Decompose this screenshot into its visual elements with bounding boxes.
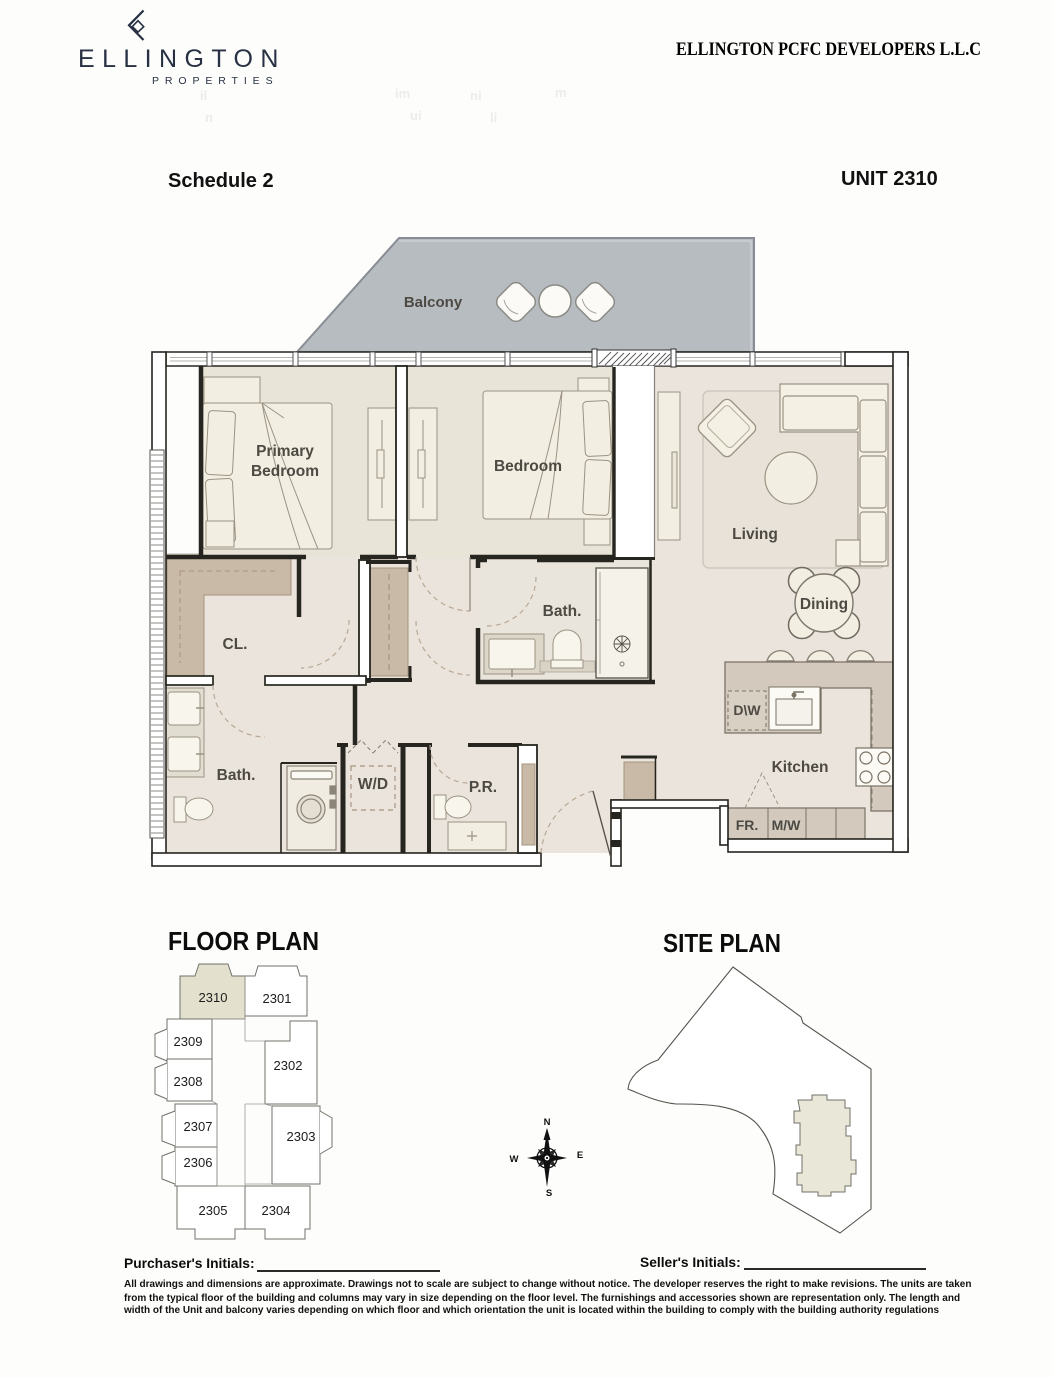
svg-text:UNIT 2310: UNIT 2310 <box>841 168 938 190</box>
svg-text:2303: 2303 <box>287 1129 316 1144</box>
svg-text:SITE PLAN: SITE PLAN <box>663 928 781 958</box>
svg-text:Kitchen: Kitchen <box>772 759 829 776</box>
svg-text:Bedroom: Bedroom <box>251 463 319 480</box>
svg-text:Schedule 2: Schedule 2 <box>168 170 274 192</box>
svg-text:ni: ni <box>470 88 482 103</box>
svg-text:ELLINGTON PCFC DEVELOPERS L.L.: ELLINGTON PCFC DEVELOPERS L.L.C <box>676 39 981 60</box>
svg-text:PROPERTIES: PROPERTIES <box>152 75 279 87</box>
svg-text:2308: 2308 <box>174 1074 203 1089</box>
svg-text:2301: 2301 <box>263 991 292 1006</box>
svg-text:2304: 2304 <box>262 1203 291 1218</box>
svg-text:ELLINGTON: ELLINGTON <box>78 45 286 73</box>
svg-text:n: n <box>205 110 213 125</box>
svg-text:W: W <box>510 1154 519 1165</box>
svg-text:Bath.: Bath. <box>217 767 256 784</box>
svg-text:FLOOR PLAN: FLOOR PLAN <box>168 926 319 956</box>
svg-text:2305: 2305 <box>199 1203 228 1218</box>
svg-text:Dining: Dining <box>800 596 848 613</box>
svg-text:width of the Unit and balcony: width of the Unit and balcony varies dep… <box>123 1305 939 1316</box>
svg-text:im: im <box>395 86 410 101</box>
svg-text:CL.: CL. <box>223 636 248 653</box>
svg-text:li: li <box>490 110 497 125</box>
svg-text:Bath.: Bath. <box>543 603 582 620</box>
svg-text:All drawings and dimensions ar: All drawings and dimensions are approxim… <box>124 1279 971 1290</box>
svg-text:2306: 2306 <box>184 1155 213 1170</box>
svg-text:Primary: Primary <box>256 443 314 460</box>
svg-text:m: m <box>555 85 567 100</box>
svg-text:Balcony: Balcony <box>404 294 463 311</box>
svg-text:S: S <box>546 1188 552 1199</box>
svg-text:2302: 2302 <box>274 1058 303 1073</box>
svg-text:M/W: M/W <box>772 817 802 833</box>
svg-text:ui: ui <box>410 108 422 123</box>
svg-text:E: E <box>577 1150 583 1161</box>
svg-text:Purchaser's Initials:: Purchaser's Initials: <box>124 1256 255 1271</box>
svg-text:Living: Living <box>732 526 778 543</box>
svg-text:W/D: W/D <box>358 776 388 793</box>
svg-text:il: il <box>200 88 207 103</box>
svg-text:2310: 2310 <box>199 990 228 1005</box>
svg-text:2307: 2307 <box>184 1119 213 1134</box>
svg-text:D\W: D\W <box>733 702 761 718</box>
svg-text:from the typical floor of the: from the typical floor of the building a… <box>124 1293 960 1304</box>
svg-text:Bedroom: Bedroom <box>494 458 562 475</box>
svg-text:P.R.: P.R. <box>469 779 497 796</box>
svg-text:2309: 2309 <box>174 1034 203 1049</box>
svg-text:N: N <box>544 1117 551 1128</box>
svg-text:FR.: FR. <box>736 817 759 833</box>
svg-text:Seller's Initials:: Seller's Initials: <box>640 1255 741 1270</box>
